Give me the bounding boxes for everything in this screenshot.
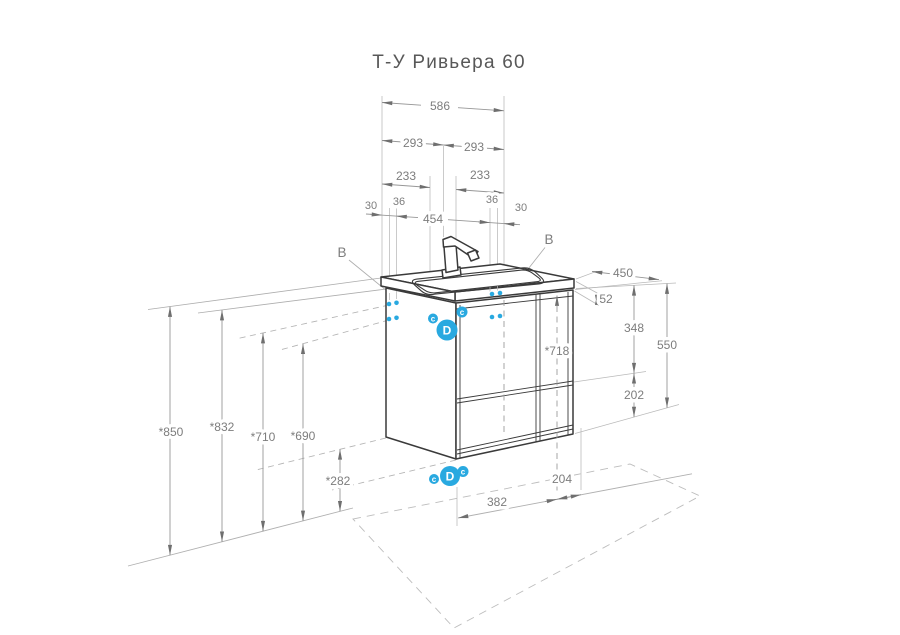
- drawing-title: Т-У Ривьера 60: [372, 52, 525, 73]
- technical-drawing-page: Т-У Ривьера 60 586 293 293 233 233 30 36…: [0, 0, 900, 635]
- dim-30-left: 30: [365, 200, 377, 212]
- top-dimension-lines: [366, 103, 520, 225]
- dim-overall-width: 586: [430, 99, 450, 113]
- dim-52: 52: [599, 292, 613, 306]
- dim-282: *282: [326, 474, 351, 488]
- letter-c-upper-left: c: [431, 315, 436, 324]
- dim-depth-450: 450: [613, 266, 633, 280]
- dim-36-right: 36: [486, 194, 498, 206]
- dim-382: 382: [487, 495, 507, 509]
- dim-233-left: 233: [396, 169, 416, 183]
- letter-c-lower-left: c: [432, 475, 437, 484]
- letter-d-lower: D: [446, 470, 455, 484]
- dim-30-right: 30: [515, 202, 527, 214]
- dim-832: *832: [210, 420, 235, 434]
- dim-204: 204: [552, 472, 572, 486]
- callout-b-right: B: [544, 232, 553, 247]
- dim-710: *710: [251, 430, 276, 444]
- vanity-dimension-drawing: Т-У Ривьера 60 586 293 293 233 233 30 36…: [0, 0, 900, 635]
- right-dimensions: [574, 271, 679, 433]
- dim-half-left: 293: [403, 136, 423, 150]
- dim-half-right: 293: [464, 140, 484, 154]
- dim-36-left: 36: [393, 196, 405, 208]
- dim-348: 348: [624, 321, 644, 335]
- dim-454: 454: [423, 212, 443, 226]
- vanity-cabinet: [381, 264, 574, 459]
- dim-233-right: 233: [470, 168, 490, 182]
- letter-c-upper-right: c: [460, 308, 465, 317]
- floor-lines: [128, 464, 700, 628]
- cabinet-left-side: [386, 288, 456, 459]
- dim-550: 550: [657, 338, 677, 352]
- dim-850: *850: [159, 425, 184, 439]
- dim-202: 202: [624, 388, 644, 402]
- letter-c-lower-right: c: [461, 468, 466, 477]
- letter-d-upper: D: [443, 324, 452, 338]
- dim-718: *718: [545, 344, 570, 358]
- callout-b-left: B: [337, 245, 346, 260]
- cabinet-front: [456, 290, 573, 459]
- dim-690: *690: [291, 429, 316, 443]
